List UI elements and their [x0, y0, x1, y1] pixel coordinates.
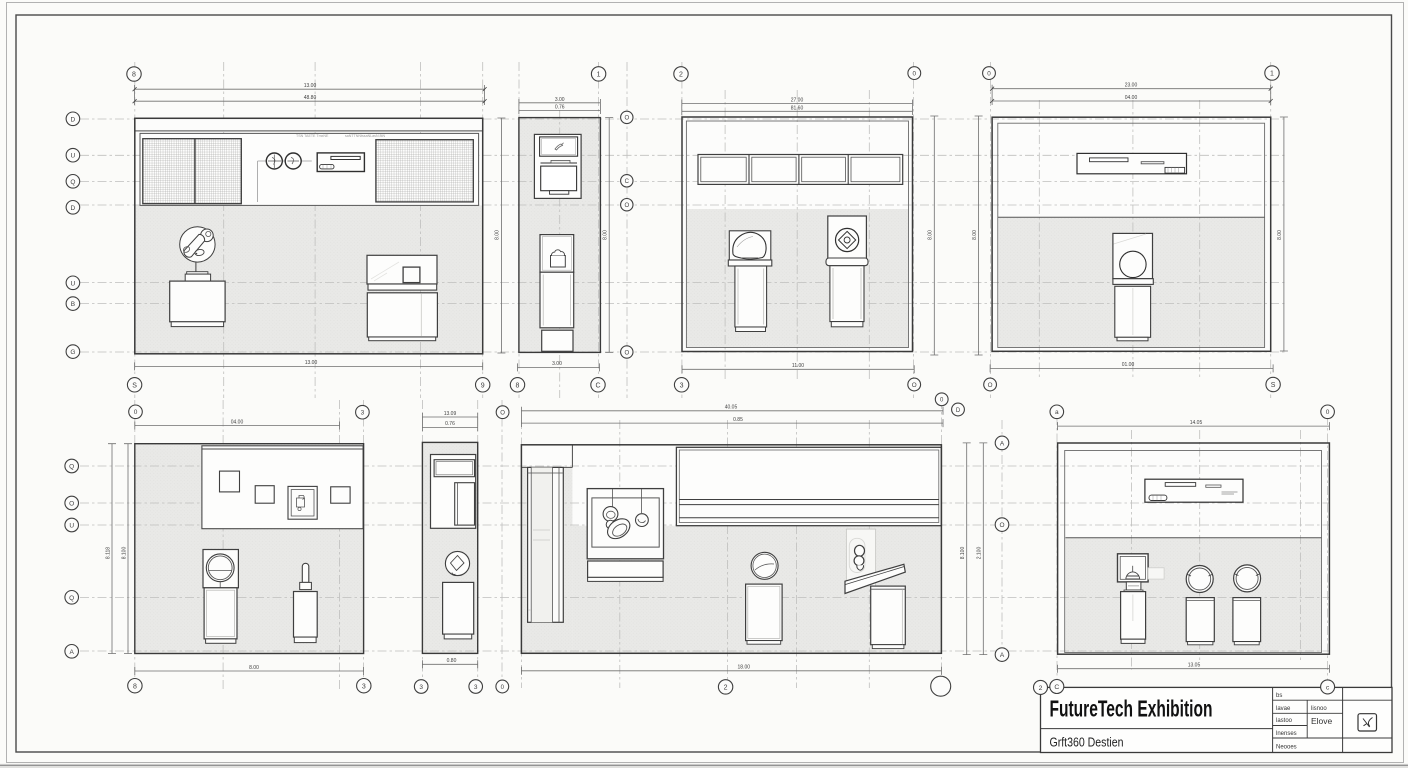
svg-text:0.85: 0.85: [733, 417, 743, 423]
svg-text:O: O: [500, 411, 505, 417]
svg-text:C: C: [595, 382, 600, 389]
svg-text:a: a: [1055, 409, 1059, 416]
svg-text:2.100: 2.100: [977, 547, 983, 560]
svg-text:0: 0: [987, 71, 991, 78]
svg-text:lastoo: lastoo: [1276, 718, 1293, 724]
svg-text:Q: Q: [69, 595, 74, 602]
svg-text:81.60: 81.60: [791, 105, 804, 111]
svg-text:04.00: 04.00: [231, 419, 244, 425]
svg-text:TSN TAETE TmxNE: TSN TAETE TmxNE: [296, 134, 329, 138]
svg-text:8.00: 8.00: [249, 665, 259, 671]
svg-text:Q: Q: [70, 179, 75, 186]
svg-text:C: C: [625, 179, 630, 185]
svg-text:U: U: [71, 153, 76, 160]
svg-text:8.00: 8.00: [603, 230, 609, 240]
svg-text:Neooes: Neooes: [1276, 745, 1297, 751]
svg-text:2: 2: [724, 685, 728, 692]
svg-text:3: 3: [361, 410, 365, 417]
svg-text:3: 3: [419, 684, 423, 691]
svg-text:U: U: [71, 280, 76, 287]
svg-text:18.00: 18.00: [738, 665, 751, 671]
svg-text:3.00: 3.00: [552, 361, 562, 367]
svg-text:13.09: 13.09: [444, 411, 457, 417]
svg-text:D: D: [71, 116, 76, 123]
svg-text:D: D: [71, 205, 76, 212]
svg-text:3: 3: [362, 683, 366, 690]
svg-text:04.00: 04.00: [1125, 95, 1138, 101]
svg-text:8: 8: [132, 72, 136, 79]
svg-text:13.00: 13.00: [305, 360, 318, 366]
svg-text:2: 2: [1039, 685, 1043, 692]
svg-text:Elove: Elove: [1311, 716, 1333, 726]
svg-text:13.00: 13.00: [304, 83, 317, 89]
svg-text:3.00: 3.00: [555, 97, 565, 103]
svg-text:O: O: [988, 382, 993, 389]
svg-text:0: 0: [1326, 409, 1330, 416]
svg-text:0.76: 0.76: [555, 105, 565, 111]
svg-text:A: A: [1000, 652, 1005, 659]
svg-text:O: O: [69, 501, 74, 508]
svg-text:S: S: [1271, 382, 1276, 389]
svg-text:U: U: [69, 523, 74, 530]
svg-text:lnenses: lnenses: [1276, 731, 1297, 737]
svg-text:8.00: 8.00: [972, 230, 978, 240]
svg-text:Q: Q: [69, 464, 74, 471]
svg-text:8.00: 8.00: [928, 230, 934, 240]
svg-text:40.05: 40.05: [725, 405, 738, 411]
svg-text:lavae: lavae: [1276, 706, 1291, 712]
svg-text:8.00: 8.00: [1277, 230, 1283, 240]
svg-text:27.00: 27.00: [791, 98, 804, 104]
svg-text:0: 0: [913, 71, 917, 78]
svg-text:0.80: 0.80: [447, 658, 457, 664]
svg-text:11.00: 11.00: [792, 363, 804, 369]
svg-text:3: 3: [680, 382, 684, 389]
svg-text:O: O: [999, 522, 1004, 529]
svg-text:G: G: [70, 349, 75, 356]
svg-text:9: 9: [481, 382, 485, 389]
svg-text:D: D: [956, 408, 961, 414]
svg-text:8: 8: [133, 683, 137, 690]
svg-text:Grft360 Destien: Grft360 Destien: [1050, 735, 1124, 750]
svg-text:1: 1: [1270, 71, 1274, 78]
svg-text:S: S: [132, 382, 137, 389]
svg-text:FutureTech Exhibition: FutureTech Exhibition: [1050, 696, 1213, 722]
svg-text:8.118: 8.118: [105, 547, 111, 559]
svg-text:A: A: [70, 649, 75, 656]
svg-text:O: O: [624, 203, 629, 209]
svg-text:2: 2: [679, 72, 683, 79]
svg-text:13.05: 13.05: [1188, 663, 1201, 669]
svg-text:A: A: [1000, 440, 1005, 447]
svg-text:lisnoo: lisnoo: [1311, 706, 1327, 712]
svg-text:8.100: 8.100: [121, 547, 127, 560]
svg-text:3: 3: [474, 684, 478, 691]
svg-text:O: O: [912, 382, 917, 389]
svg-text:0: 0: [134, 409, 138, 416]
svg-text:1: 1: [597, 72, 601, 79]
svg-text:O: O: [624, 116, 629, 122]
svg-text:8.00: 8.00: [495, 230, 501, 240]
svg-text:saNTTNNtssaNLasN 8tN: saNTTNNtssaNLasN 8tN: [345, 134, 386, 138]
svg-text:B: B: [71, 301, 75, 308]
svg-text:O: O: [624, 350, 629, 356]
svg-text:8.100: 8.100: [960, 547, 966, 560]
svg-text:48.80: 48.80: [304, 95, 317, 101]
svg-text:23.00: 23.00: [1125, 83, 1138, 89]
svg-text:bs: bs: [1276, 693, 1282, 699]
svg-text:0.76: 0.76: [445, 421, 455, 427]
svg-text:8: 8: [516, 382, 520, 389]
svg-text:14.05: 14.05: [1190, 420, 1203, 426]
svg-text:01.00: 01.00: [1122, 362, 1135, 368]
svg-text:c: c: [1326, 685, 1330, 692]
svg-text:C: C: [1054, 684, 1059, 691]
